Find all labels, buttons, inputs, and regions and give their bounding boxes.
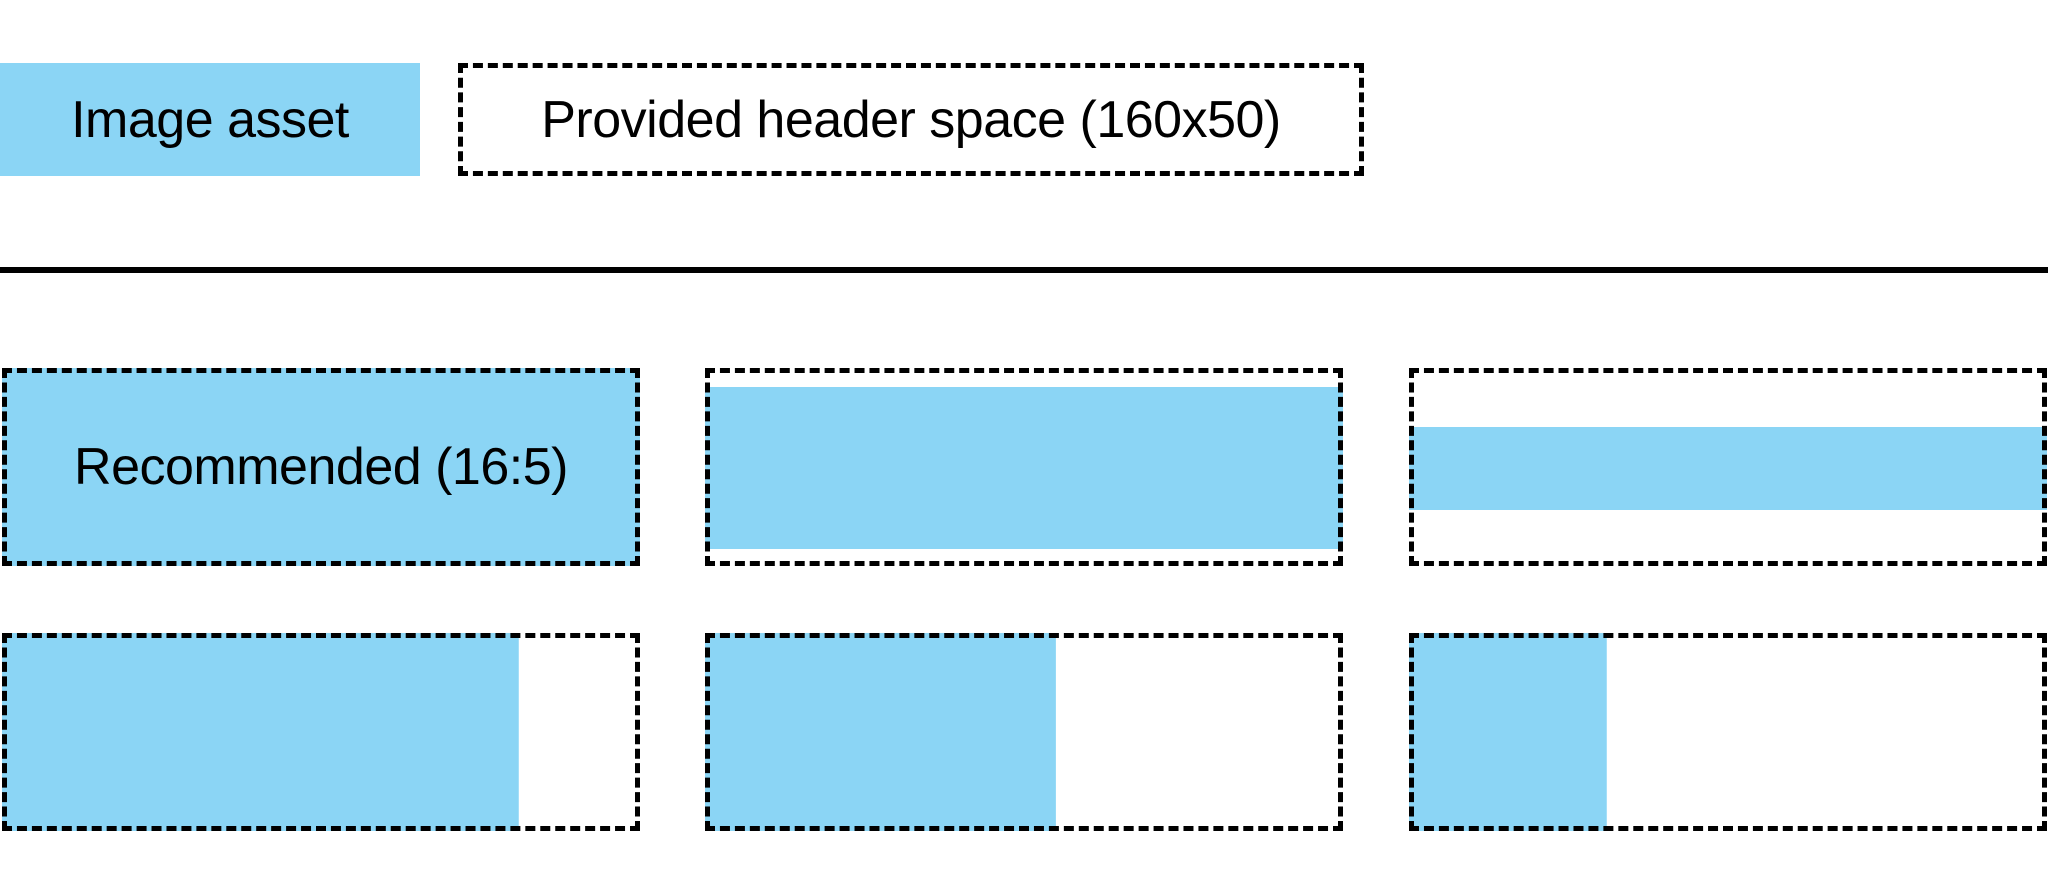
demo-cell-recommended-16-5: Recommended (16:5) (2, 368, 640, 566)
demo-cell-pillarbox-81 (2, 633, 640, 831)
recommended-label: Recommended (16:5) (74, 441, 568, 493)
demo-cell-pillarbox-55 (705, 633, 1343, 831)
diagram-canvas: { "canvas": { "background": "#ffffff" },… (0, 0, 2048, 896)
demo-cell-deep-letterbox (1409, 368, 2047, 566)
header-space-legend-box: Provided header space (160x50) (458, 63, 1364, 176)
image-asset-legend-chip: Image asset (0, 63, 420, 176)
demo-cell-slight-letterbox (705, 368, 1343, 566)
header-space-label: Provided header space (160x50) (541, 94, 1280, 146)
image-asset-label: Image asset (71, 94, 349, 146)
section-divider (0, 267, 2048, 273)
demo-cell-pillarbox-31 (1409, 633, 2047, 831)
